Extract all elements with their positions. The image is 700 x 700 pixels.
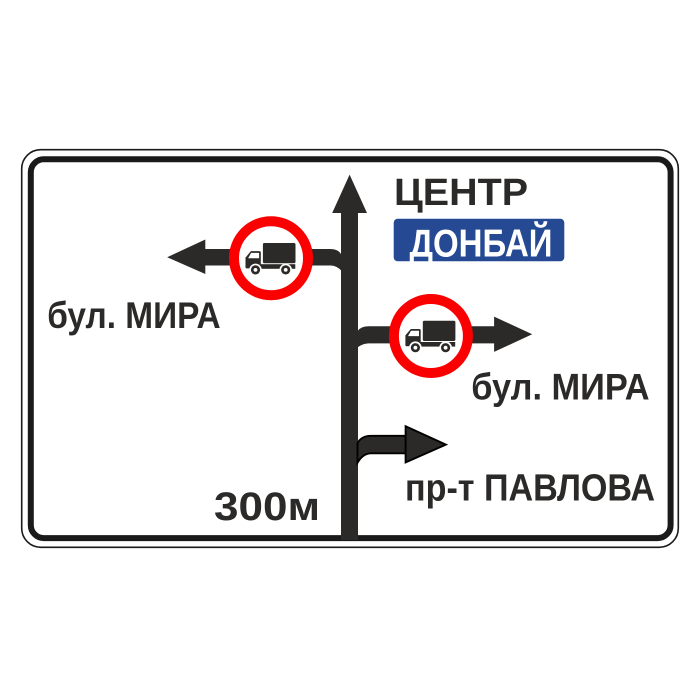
svg-text:300м: 300м [214, 485, 320, 529]
svg-text:бул. МИРА: бул. МИРА [47, 295, 220, 336]
svg-text:ДОНБАЙ: ДОНБАЙ [410, 220, 553, 265]
svg-text:пр-т ПАВЛОВА: пр-т ПАВЛОВА [405, 467, 655, 509]
svg-text:бул. МИРА: бул. МИРА [471, 366, 649, 407]
svg-text:ЦЕНТР: ЦЕНТР [394, 172, 528, 214]
